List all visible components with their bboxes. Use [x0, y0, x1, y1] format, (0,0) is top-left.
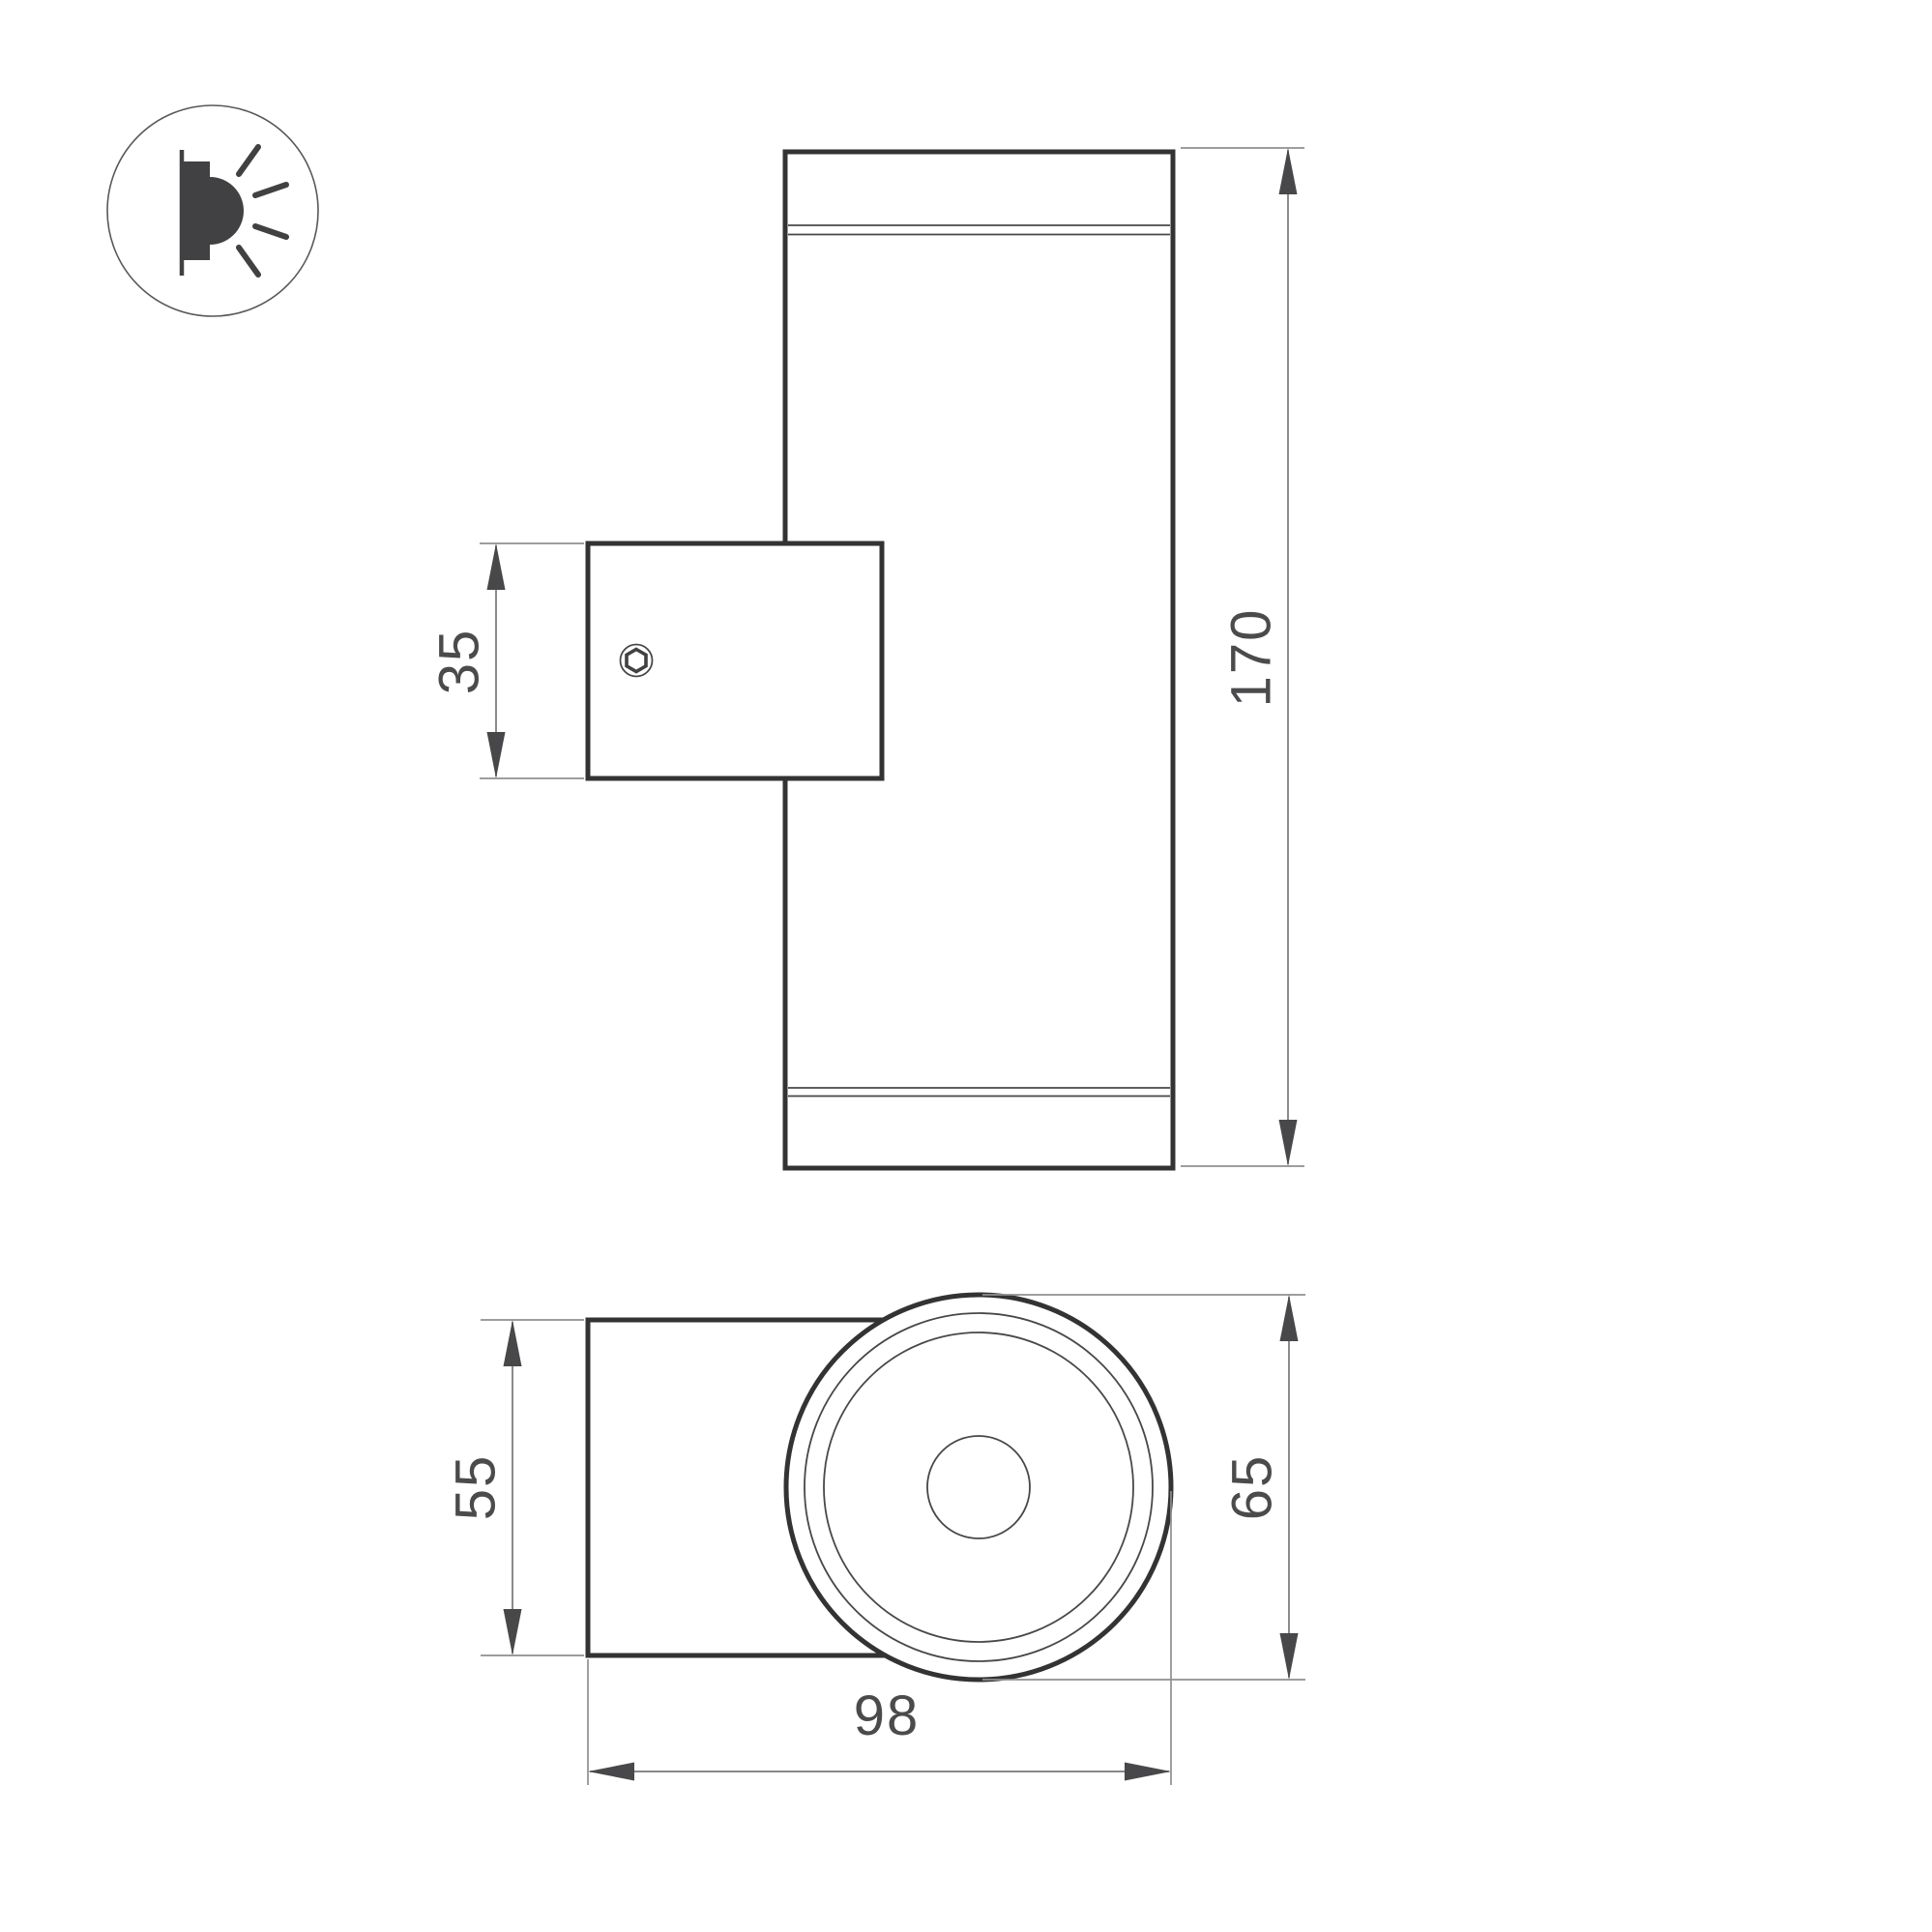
front-view: 35 170 [428, 148, 1305, 1168]
dim-label-overall-depth: 98 [854, 1684, 921, 1747]
dim-label-body-height: 170 [1220, 608, 1283, 708]
dim-label-bracket-width: 55 [445, 1454, 508, 1521]
dim-label-bracket-height: 35 [428, 629, 491, 695]
bottom-view: 55 65 98 [445, 1295, 1306, 1785]
mounting-bracket-outline [588, 543, 882, 778]
dimension-drawing: 35 170 55 [0, 0, 1932, 1932]
drawing-canvas: 35 170 55 [0, 0, 1932, 1932]
dim-label-head-diameter: 65 [1221, 1454, 1284, 1521]
dimension-bracket-height: 35 [428, 543, 585, 778]
lamp-head-outer-circle [786, 1295, 1171, 1680]
dimension-body-height: 170 [1181, 148, 1304, 1166]
dimension-bracket-width: 55 [445, 1320, 585, 1655]
wall-light-side-emission-icon [107, 105, 318, 316]
icon-lamp-body [184, 161, 210, 260]
